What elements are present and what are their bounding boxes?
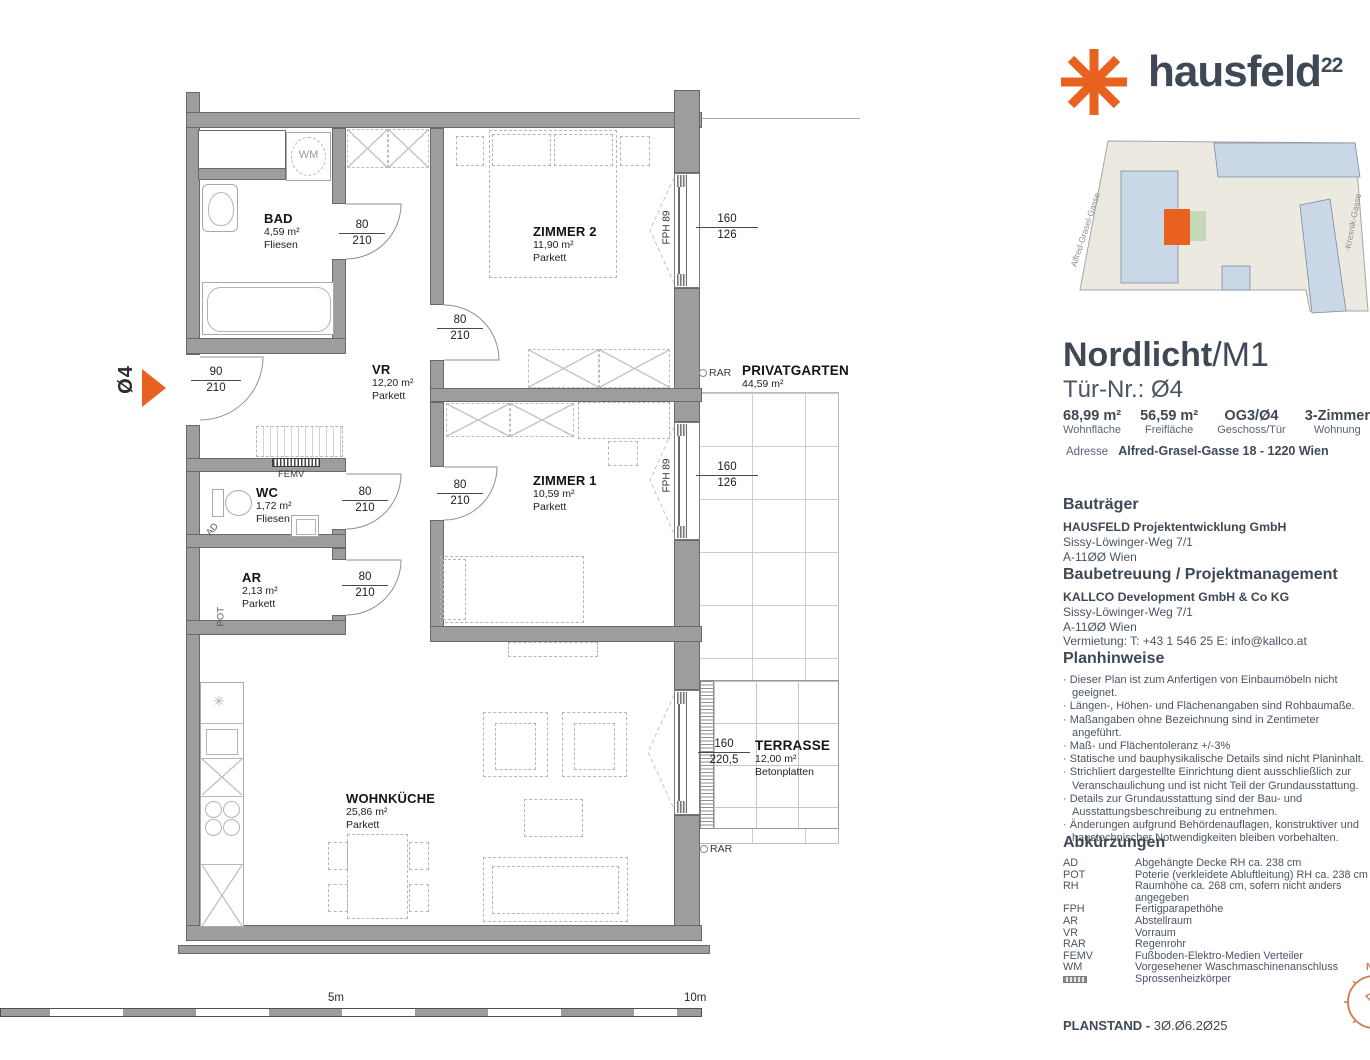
wardrobe [599,349,670,388]
section-heading: Planhinweise [1063,650,1370,668]
room-label-ar: AR 2,13 m² Parkett [242,571,278,610]
floorplan-sheet: { "branding": { "name": "hausfeld", "sup… [0,0,1370,1060]
plan-note: Maßangaben ohne Bezeichnung sind in Zent… [1063,714,1370,740]
radiator-icon [677,801,686,813]
management-section: Baubetreuung / Projektmanagement KALLCO … [1063,566,1370,649]
stat-item: OG3/Ø4 Geschoss/Tür [1217,408,1285,437]
sideboard [508,642,598,657]
section-heading: Abkürzungen [1063,834,1370,852]
rar-circle-icon [700,845,708,853]
window-frame [678,692,687,813]
pot-label: POT [216,597,227,627]
hob-ring [205,801,222,818]
wall [186,425,200,927]
wall [332,548,346,560]
scale-5m-label: 5m [328,992,344,1004]
wall [186,112,702,128]
abbreviation-row: VR Vorraum [1063,928,1370,940]
nightstand [620,136,650,166]
plan-note: Details zur Grundausstattung sind der Ba… [1063,793,1370,819]
wall [674,90,700,173]
dining-chair [409,884,429,912]
armchair-seat [495,723,536,770]
abbreviation-row: FPH Fertigparapethöhe [1063,904,1370,916]
address-label: Adresse [1066,446,1108,458]
radiator-icon [677,692,686,704]
wall [430,388,702,402]
fph-label-zimmer1: FPH 89 [662,451,673,501]
wardrobe [446,403,510,437]
wall [430,626,702,642]
femv-strip [272,458,320,467]
plan-note: Dieser Plan ist zum Anfertigen von Einba… [1063,674,1370,700]
desk-chair [608,441,638,466]
unit-number-marker: Ø4 [115,365,138,394]
dim-zimmer2-door: 80 210 [437,314,483,342]
wardrobe [347,129,388,168]
plan-note: Längen-, Höhen- und Flächenangaben sind … [1063,700,1370,713]
wall [674,540,700,690]
window-frame [678,424,687,538]
project-title: Nordlicht/M1 [1063,336,1370,374]
svg-text:N: N [1366,962,1370,973]
nightstand [456,136,484,166]
wall [178,945,710,954]
freezer-star-icon: ✳ [213,693,225,710]
plan-note: Strichliert dargestellte Einrichtung die… [1063,766,1370,792]
room-label-zimmer1: ZIMMER 1 10,59 m² Parkett [533,474,597,513]
armchair-seat [574,723,615,770]
terrace-door [674,690,700,815]
dim-ar-door: 80 210 [342,571,388,599]
wall [186,620,346,635]
scale-10m-label: 10m [684,992,706,1004]
kitchen-sink [206,729,238,755]
cabinet [202,865,242,926]
door-number: Tür-Nr.: Ø4 [1063,376,1370,404]
dining-chair [328,842,348,870]
room-label-bad: BAD 4,59 m² Fliesen [264,212,300,251]
scale-bar [0,1008,702,1017]
hob-ring [223,801,240,818]
pillow [492,134,551,166]
wall [186,925,702,941]
stat-item: 68,99 m² Wohnfläche [1063,408,1121,437]
radiator-icon [677,175,686,187]
abbreviation-row: RAR Regenrohr [1063,939,1370,951]
installation-shaft [198,130,286,170]
wall [186,458,346,472]
wardrobe [510,403,574,437]
radiator-icon [677,424,686,436]
wall [198,168,286,180]
wardrobe [528,349,599,388]
pillow [554,134,613,166]
abbreviations-section: Abkürzungen AD Abgehängte Decke RH ca. 2… [1063,834,1370,987]
plan-notes-section: Planhinweise Dieser Plan ist zum Anferti… [1063,650,1370,846]
wall [430,402,444,467]
hausfeld-star-icon [1058,46,1130,118]
window-swing-terrace [648,695,674,809]
radiator-legend-icon [1063,976,1087,983]
dining-table [347,834,408,919]
site-plan [1072,135,1370,320]
plan-note: Statische und bauphysikalische Details s… [1063,753,1370,766]
brand-logo: hausfeld22 [1058,46,1342,118]
abbreviation-row: AR Abstellraum [1063,916,1370,928]
kitchen-counter: ✳ [200,682,244,927]
site-unit-highlight [1164,209,1190,245]
abbreviation-row: RH Raumhöhe ca. 268 cm, sofern nicht and… [1063,881,1370,904]
wall [430,128,444,305]
unit-title-block: Nordlicht/M1 Tür-Nr.: Ø4 [1063,336,1370,404]
wall [674,815,700,927]
brand-name: hausfeld22 [1148,46,1342,98]
abbreviation-row-radiator: Sprossenheizkörper [1063,974,1370,987]
section-heading: Baubetreuung / Projektmanagement [1063,566,1370,584]
site-building-north [1214,143,1360,177]
pillow [443,559,466,620]
plan-status: PLANSTAND - 3Ø.Ø6.2Ø25 [1063,1018,1227,1033]
stat-item: 3-Zimmer Wohnung [1305,408,1370,437]
room-label-vr: VR 12,20 m² Parkett [372,363,413,402]
site-boundary-line [702,118,860,119]
dim-zimmer1-window: 160 126 [696,461,758,489]
washbasin [202,184,238,232]
wardrobe [388,129,429,168]
desk [578,402,670,439]
hob-ring [223,819,240,836]
developer-section: Bauträger HAUSFELD Projektentwicklung Gm… [1063,496,1370,564]
room-label-wc: WC 1,72 m² Fliesen [256,486,292,525]
toilet-bowl [225,490,252,516]
stat-item: 56,59 m² Freifläche [1140,408,1198,437]
rar-marker-top: RAR [699,367,731,379]
radiator-icon [677,526,686,538]
unit-stats: 68,99 m² Wohnfläche 56,59 m² Freifläche … [1063,408,1370,437]
room-label-wohnkueche: WOHNKÜCHE 25,86 m² Parkett [346,792,435,831]
dining-chair [328,884,348,912]
room-label-zimmer2: ZIMMER 2 11,90 m² Parkett [533,225,597,264]
brand-superscript: 22 [1321,54,1342,77]
abbreviations-list: AD Abgehängte Decke RH ca. 238 cm POT Po… [1063,858,1370,974]
address-value: Alfred-Grasel-Gasse 18 - 1220 Wien [1118,444,1328,458]
dim-terrace-door: 160 220,5 [698,738,750,766]
floor-plan: ✳ BAD 4,59 m² Fliesen ZIMMER 2 11,90 [0,0,900,1060]
fph-label-zimmer2: FPH 89 [662,203,673,253]
section-heading: Bauträger [1063,496,1370,514]
plan-note: Maß- und Flächentoleranz +/-3% [1063,740,1370,753]
dim-wc-door: 80 210 [342,486,388,514]
bathtub [202,282,334,335]
wm-label: WM [286,149,331,161]
sofa-seat [492,866,619,914]
compass-icon: N [1338,958,1370,1036]
dim-entrance-door: 90 210 [191,366,241,394]
address-row: AdresseAlfred-Grasel-Gasse 18 - 1220 Wie… [1066,444,1329,458]
dim-bad-door: 80 210 [339,219,385,247]
rar-marker-bottom: RAR [700,843,732,855]
rar-circle-icon [699,369,707,377]
site-building-small [1222,266,1250,290]
wall [332,128,346,204]
dim-zimmer1-door: 80 210 [437,479,483,507]
small-sink [291,515,319,537]
hob-ring [205,819,222,836]
coffee-table [524,799,583,837]
radiator-icon [677,274,686,286]
abbreviation-row: AD Abgehängte Decke RH ca. 238 cm [1063,858,1370,870]
room-label-privatgarten: PRIVATGARTEN 44,59 m² [742,364,849,391]
window-frame [678,175,687,286]
room-label-terrasse: TERRASSE 12,00 m² Betonplatten [755,739,830,778]
dim-zimmer2-window: 160 126 [696,213,758,241]
plan-notes-list: Dieser Plan ist zum Anfertigen von Einba… [1063,674,1370,846]
cabinet [202,759,242,795]
entrance-arrow-icon [142,369,166,407]
coat-rack [256,426,343,457]
wall [186,338,346,354]
dining-chair [409,842,429,870]
femv-label: FEMV [278,469,304,480]
